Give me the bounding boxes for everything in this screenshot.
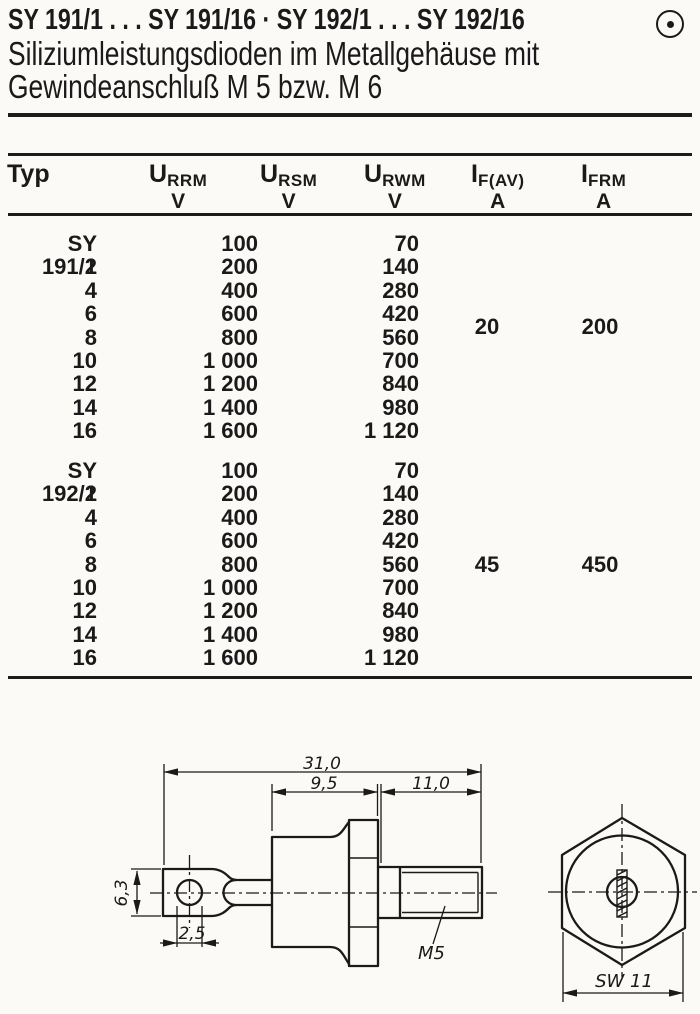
- cell-urwm: 70: [258, 459, 419, 482]
- table-row: 6600420: [8, 302, 419, 325]
- cell-urrm-ursm: 1 000: [97, 349, 258, 372]
- cell-typ: 12: [8, 599, 97, 622]
- table-row: 141 400980: [8, 623, 419, 646]
- cell-urwm: 980: [258, 623, 419, 646]
- cell-urrm-ursm: 1 600: [97, 419, 258, 442]
- column-header-typ: Typ: [7, 161, 50, 191]
- cell-urrm-ursm: 800: [97, 553, 258, 576]
- col-symbol: Typ: [7, 160, 50, 188]
- table-row: 2200140: [8, 482, 419, 505]
- page-title: SY 191/1 . . . SY 191/16 · SY 192/1 . . …: [8, 4, 525, 37]
- col-symbol: U: [260, 160, 278, 188]
- page-subtitle: Siliziumleistungsdioden im Metallgehäuse…: [8, 37, 539, 103]
- cell-urrm-ursm: 200: [97, 482, 258, 505]
- col-subscript: F(AV): [478, 171, 525, 190]
- cell-typ: SY 192/1: [8, 459, 97, 482]
- thread-leader-line: [433, 906, 445, 944]
- if-av-value-sy192: 45: [462, 553, 512, 576]
- table-row: 101 000700: [8, 349, 419, 372]
- table-row: 8800560: [8, 553, 419, 576]
- dim-label-hole: 2,5: [178, 924, 205, 944]
- col-symbol: U: [149, 160, 167, 188]
- cell-urrm-ursm: 100: [97, 232, 258, 255]
- col-subscript: FRM: [588, 171, 626, 190]
- cell-urwm: 280: [258, 506, 419, 529]
- col-unit: V: [149, 191, 207, 213]
- cell-typ: 2: [8, 255, 97, 278]
- cell-typ: 10: [8, 349, 97, 372]
- col-symbol: I: [471, 160, 478, 188]
- table-row: 121 200840: [8, 372, 419, 395]
- cell-urwm: 560: [258, 553, 419, 576]
- end-view: SW 11: [548, 804, 697, 1002]
- if-av-value-sy191: 20: [462, 315, 512, 338]
- cell-typ: 8: [8, 553, 97, 576]
- column-header-ifav: IF(AV) A: [471, 161, 525, 213]
- cell-typ: 10: [8, 576, 97, 599]
- cell-typ: 6: [8, 529, 97, 552]
- table-top-rule: [8, 153, 692, 156]
- cell-urwm: 560: [258, 326, 419, 349]
- cell-typ: SY 191/1: [8, 232, 97, 255]
- cell-urrm-ursm: 600: [97, 529, 258, 552]
- table-row: 161 6001 120: [8, 646, 419, 669]
- cell-urwm: 280: [258, 279, 419, 302]
- col-unit: V: [364, 191, 426, 213]
- heading-divider: [8, 113, 692, 117]
- cell-typ: 6: [8, 302, 97, 325]
- table-row: 2200140: [8, 255, 419, 278]
- table-row: 8800560: [8, 326, 419, 349]
- dim-label-across-flats: SW 11: [595, 971, 653, 992]
- circled-dot-center: [667, 21, 674, 28]
- cell-urrm-ursm: 400: [97, 506, 258, 529]
- subtitle-line-2: Gewindeanschluß M 5 bzw. M 6: [8, 70, 539, 103]
- dim-label-lug: 6,3: [112, 879, 132, 906]
- table-row: 101 000700: [8, 576, 419, 599]
- cell-urwm: 700: [258, 349, 419, 372]
- column-header-urrm: URRM V: [149, 161, 207, 213]
- col-subscript: RRM: [167, 171, 207, 190]
- table-row: 6600420: [8, 529, 419, 552]
- cell-typ: 14: [8, 623, 97, 646]
- col-unit: A: [471, 191, 525, 213]
- cell-urrm-ursm: 600: [97, 302, 258, 325]
- table-header-rule: [8, 213, 692, 216]
- table-group-rows-1: SY 191/110070220014044002806600420880056…: [8, 232, 419, 443]
- cell-urrm-ursm: 400: [97, 279, 258, 302]
- table-row: SY 191/110070: [8, 232, 419, 255]
- cell-urrm-ursm: 1 200: [97, 599, 258, 622]
- table-group-rows-2: SY 192/110070220014044002806600420880056…: [8, 459, 419, 670]
- cell-urrm-ursm: 1 000: [97, 576, 258, 599]
- table-row: 121 200840: [8, 599, 419, 622]
- cell-typ: 16: [8, 646, 97, 669]
- cell-urwm: 420: [258, 529, 419, 552]
- ifrm-value-sy192: 450: [569, 553, 631, 576]
- cell-urrm-ursm: 100: [97, 459, 258, 482]
- cell-urwm: 140: [258, 255, 419, 278]
- cell-typ: 14: [8, 396, 97, 419]
- subtitle-line-1: Siliziumleistungsdioden im Metallgehäuse…: [8, 37, 539, 70]
- column-header-ifrm: IFRM A: [581, 161, 626, 213]
- table-row: SY 192/110070: [8, 459, 419, 482]
- col-symbol: I: [581, 160, 588, 188]
- side-view: 31,0 9,5 11,0 6,3 2,5 M5: [112, 754, 497, 966]
- table-row: 4400280: [8, 279, 419, 302]
- cell-urrm-ursm: 200: [97, 255, 258, 278]
- col-symbol: U: [364, 160, 382, 188]
- col-subscript: RWM: [382, 171, 426, 190]
- table-bottom-rule: [8, 676, 692, 679]
- dim-label-overall: 31,0: [303, 754, 341, 774]
- cell-urwm: 1 120: [258, 646, 419, 669]
- cell-urwm: 700: [258, 576, 419, 599]
- ext-lines-body-stud: [272, 784, 381, 863]
- cell-urwm: 980: [258, 396, 419, 419]
- cell-urwm: 140: [258, 482, 419, 505]
- cell-urwm: 840: [258, 599, 419, 622]
- cell-urrm-ursm: 800: [97, 326, 258, 349]
- column-header-urwm: URWM V: [364, 161, 426, 213]
- cell-urrm-ursm: 1 400: [97, 623, 258, 646]
- table-row: 4400280: [8, 506, 419, 529]
- datasheet-page: SY 191/1 . . . SY 191/16 · SY 192/1 . . …: [0, 0, 700, 1014]
- ifrm-value-sy191: 200: [569, 315, 631, 338]
- dim-label-stud: 11,0: [412, 774, 450, 794]
- circled-dot-icon: [656, 10, 684, 38]
- table-row: 161 6001 120: [8, 419, 419, 442]
- cell-typ: 12: [8, 372, 97, 395]
- col-unit: A: [581, 191, 626, 213]
- col-subscript: RSM: [278, 171, 317, 190]
- table-row: 141 400980: [8, 396, 419, 419]
- cell-typ: 2: [8, 482, 97, 505]
- package-outline-drawing: 31,0 9,5 11,0 6,3 2,5 M5: [0, 740, 700, 1014]
- cell-typ: 16: [8, 419, 97, 442]
- cell-urwm: 70: [258, 232, 419, 255]
- cell-urrm-ursm: 1 400: [97, 396, 258, 419]
- column-header-ursm: URSM V: [260, 161, 317, 213]
- cell-urwm: 1 120: [258, 419, 419, 442]
- dim-label-body: 9,5: [310, 774, 337, 794]
- cell-typ: 8: [8, 326, 97, 349]
- cell-urwm: 840: [258, 372, 419, 395]
- cell-typ: 4: [8, 506, 97, 529]
- cell-typ: 4: [8, 279, 97, 302]
- cell-urwm: 420: [258, 302, 419, 325]
- cell-urrm-ursm: 1 600: [97, 646, 258, 669]
- col-unit: V: [260, 191, 317, 213]
- cell-urrm-ursm: 1 200: [97, 372, 258, 395]
- thread-label: M5: [418, 943, 445, 964]
